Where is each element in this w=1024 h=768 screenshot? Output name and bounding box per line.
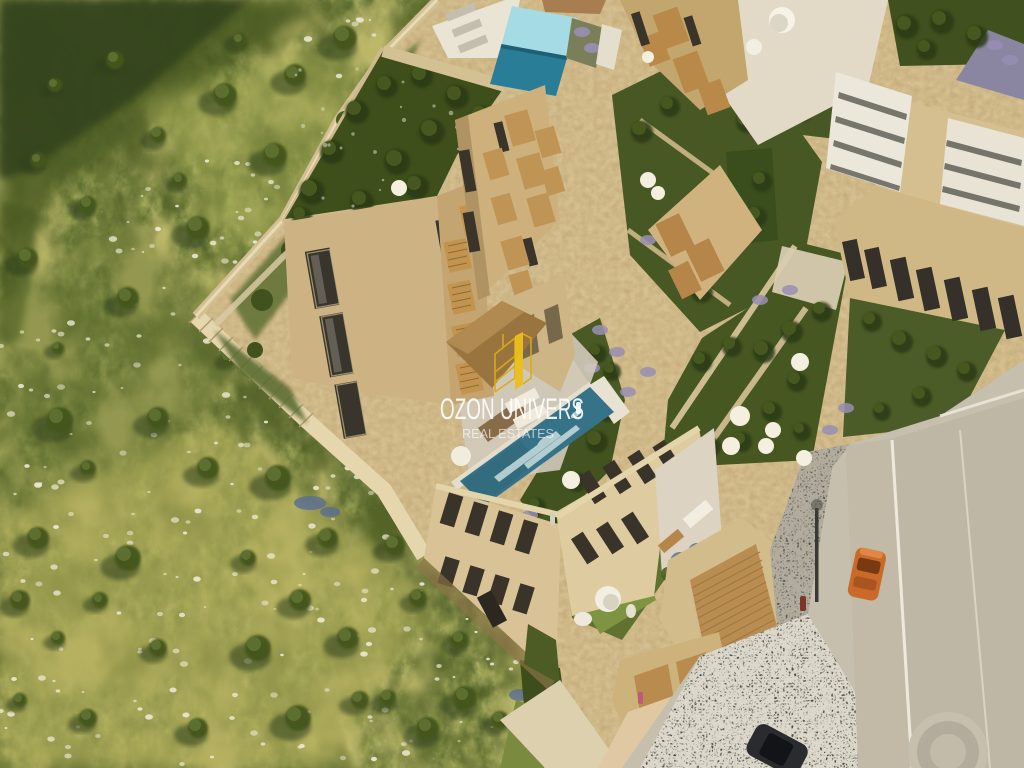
svg-text:REAL ESTATES: REAL ESTATES: [462, 426, 554, 441]
svg-text:OZON UNIVERS: OZON UNIVERS: [440, 393, 584, 426]
